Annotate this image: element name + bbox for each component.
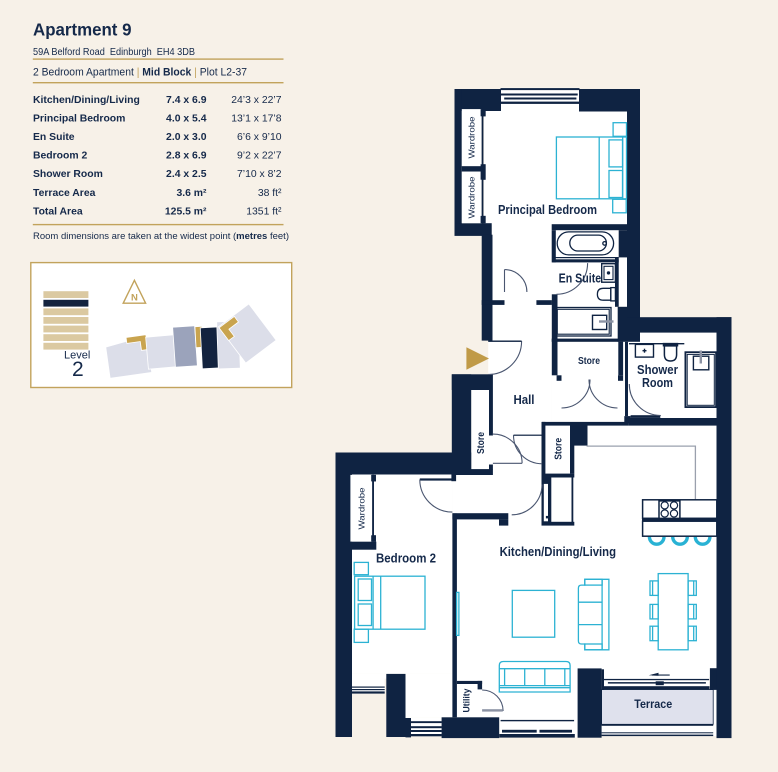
svg-text:3.6 m²: 3.6 m² [176,188,207,199]
svg-text:7’10 x 8’2: 7’10 x 8’2 [237,169,282,180]
svg-text:Store: Store [553,437,564,459]
svg-text:Store: Store [578,356,600,367]
svg-text:4.0 x 5.4: 4.0 x 5.4 [166,113,207,124]
svg-text:13’1 x 17’8: 13’1 x 17’8 [231,113,281,124]
svg-text:Bedroom 2: Bedroom 2 [33,151,87,162]
svg-text:Kitchen/Dining/Living: Kitchen/Dining/Living [33,95,140,106]
svg-text:2 Bedroom Apartment | Mid Bloc: 2 Bedroom Apartment | Mid Block | Plot L… [33,66,247,78]
svg-text:38 ft²: 38 ft² [258,188,282,199]
svg-text:9’2 x 22’7: 9’2 x 22’7 [237,151,282,162]
svg-text:2: 2 [72,358,84,381]
svg-text:Wardrobe: Wardrobe [466,176,476,218]
svg-text:125.5 m²: 125.5 m² [165,206,207,217]
svg-text:Terrace: Terrace [634,697,672,711]
svg-text:2.4 x 2.5: 2.4 x 2.5 [166,169,207,180]
svg-text:Store: Store [476,432,487,454]
svg-text:Shower Room: Shower Room [33,169,103,180]
svg-text:Room: Room [642,376,673,390]
svg-text:Principal Bedroom: Principal Bedroom [33,113,125,124]
svg-text:6’6 x 9’10: 6’6 x 9’10 [237,132,282,143]
svg-text:2.0 x 3.0: 2.0 x 3.0 [166,132,207,143]
svg-text:Kitchen/Dining/Living: Kitchen/Dining/Living [500,545,616,559]
svg-text:Principal Bedroom: Principal Bedroom [498,203,597,217]
svg-text:N: N [131,292,138,303]
svg-text:2.8 x 6.9: 2.8 x 6.9 [166,151,207,162]
svg-text:Shower: Shower [637,363,678,377]
svg-text:Total Area: Total Area [33,206,83,217]
svg-text:7.4 x 6.9: 7.4 x 6.9 [166,95,207,106]
svg-text:Apartment 9: Apartment 9 [33,20,132,40]
svg-text:En Suite: En Suite [559,272,602,286]
svg-text:Hall: Hall [514,393,535,407]
svg-text:1351 ft²: 1351 ft² [246,206,282,217]
svg-text:24’3 x 22’7: 24’3 x 22’7 [231,95,281,106]
svg-text:Wardrobe: Wardrobe [466,116,476,158]
svg-text:Wardrobe: Wardrobe [357,487,367,529]
svg-text:Room dimensions are taken at t: Room dimensions are taken at the widest … [33,231,289,241]
svg-text:59A Belford Road Edinburgh E: 59A Belford Road Edinburgh EH4 3DB [33,47,195,58]
svg-text:En Suite: En Suite [33,132,75,143]
svg-text:Bedroom 2: Bedroom 2 [376,552,436,566]
svg-text:Utility: Utility [462,689,472,713]
svg-text:Terrace Area: Terrace Area [33,188,96,199]
